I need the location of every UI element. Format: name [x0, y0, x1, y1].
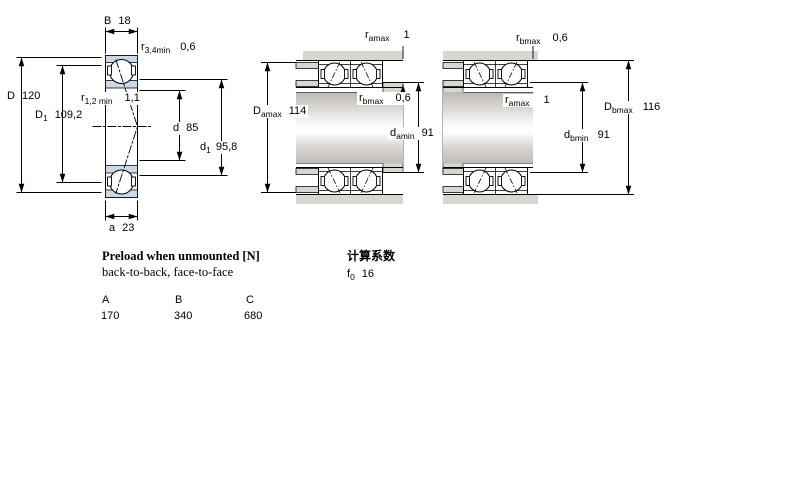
- preload-value-C: 680: [244, 310, 262, 323]
- calc-factor-f0: f016: [347, 268, 374, 281]
- preload-title: Preload when unmounted [N]: [102, 250, 260, 263]
- bearing-datasheet-drawing: B18 r3,4min0,6 D120 D1109,2 r1,2 min1,1 …: [0, 0, 800, 500]
- dim-label-Damax: Damax114: [251, 105, 308, 118]
- dim-label-d: d85: [171, 122, 200, 135]
- dim-label-B: B18: [104, 15, 131, 28]
- preload-col-header-B: B: [175, 294, 182, 307]
- preload-col-header-A: A: [102, 294, 109, 307]
- dim-label-damin: damin91: [388, 127, 436, 140]
- dim-label-r12min: r1,2 min1,1: [79, 92, 142, 105]
- dim-label-D: D120: [7, 90, 40, 103]
- dim-label-dbmin: dbmin91: [562, 129, 612, 142]
- dim-label-ramax-right: ramax1: [503, 94, 552, 107]
- dim-label-a: a23: [109, 222, 134, 235]
- dim-label-Dbmax: Dbmax116: [602, 101, 662, 114]
- back-to-back-arrangement-view: [261, 46, 424, 204]
- dim-label-D1: D1109,2: [35, 109, 82, 122]
- dim-label-r34min: r3,4min0,6: [141, 41, 195, 54]
- dim-label-rbmax-right: rbmax0,6: [514, 32, 570, 45]
- dim-label-rbmax-mid: rbmax0,6: [357, 92, 413, 105]
- calc-factor-title: 计算系数: [347, 250, 395, 263]
- dim-label-ramax-mid: ramax1: [365, 29, 410, 42]
- face-to-face-arrangement-view: [443, 46, 634, 204]
- preload-subtitle: back-to-back, face-to-face: [102, 266, 233, 279]
- page: { "left_view": { "dim_B": {"base":"B","s…: [0, 0, 800, 500]
- preload-value-B: 340: [174, 310, 192, 323]
- preload-value-A: 170: [101, 310, 119, 323]
- dim-label-d1: d195,8: [198, 141, 239, 154]
- preload-col-header-C: C: [246, 294, 254, 307]
